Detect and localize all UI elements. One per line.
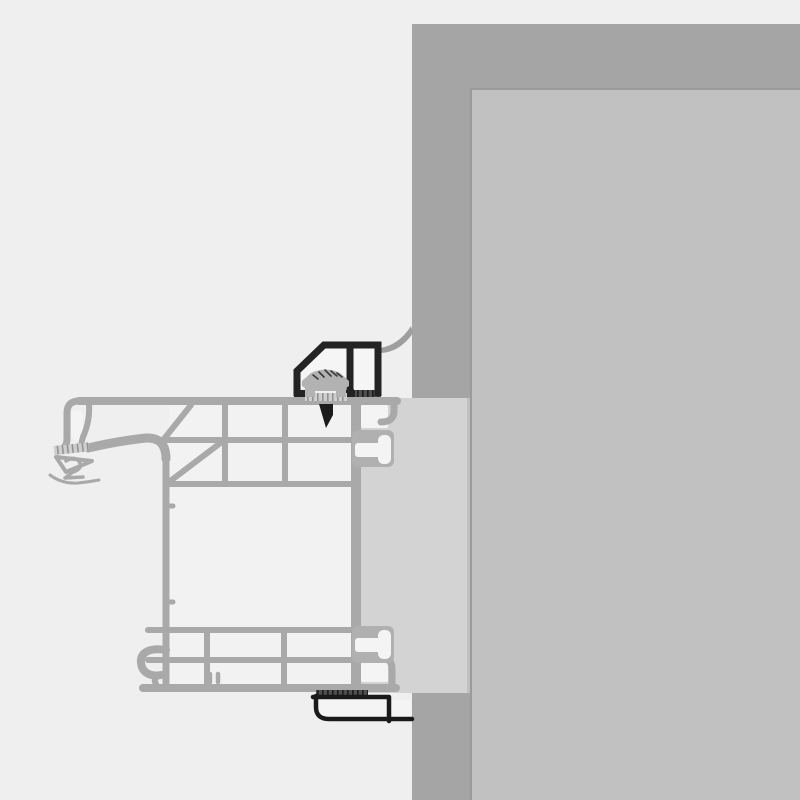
section-drawing [0,0,800,800]
drip-trim-profile [313,690,412,721]
sealing-membrane [380,326,413,353]
gasket-arm [88,438,166,459]
diagram-canvas [0,0,800,800]
window-frame-profile [50,400,397,688]
hardware-hook-tab [155,675,158,684]
anchor-lug-top [352,430,394,467]
gasket-contact-strip [54,442,90,455]
anchor-lug-bottom [352,626,394,663]
trim-gap [391,700,411,718]
profile-interior [169,404,352,684]
trim-cavity [318,699,387,718]
bracket-cavity-right [354,348,375,390]
hook-pocket-bottom [361,662,388,682]
